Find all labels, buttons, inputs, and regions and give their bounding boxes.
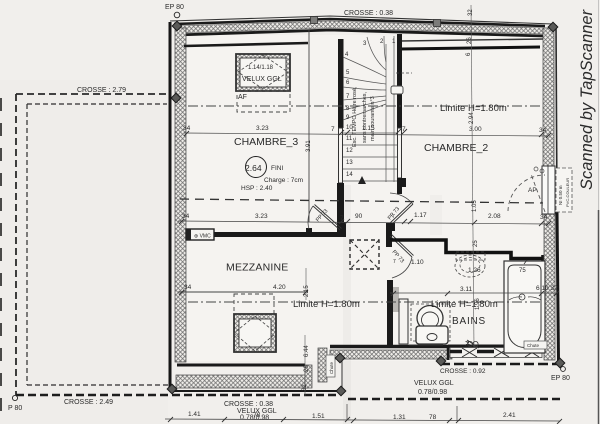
svg-text:7: 7: [402, 126, 406, 133]
svg-text:⊕ VMC: ⊕ VMC: [194, 234, 211, 240]
svg-text:BAINS: BAINS: [452, 316, 486, 327]
svg-text:P 80: P 80: [8, 405, 22, 412]
svg-text:25: 25: [473, 240, 479, 247]
svg-text:1.31: 1.31: [393, 414, 406, 421]
svg-text:3.23: 3.23: [256, 125, 269, 132]
svg-text:34: 34: [183, 125, 191, 132]
svg-text:1.41: 1.41: [188, 411, 201, 418]
svg-text:1.14/1.18: 1.14/1.18: [248, 65, 274, 71]
svg-text:1.10: 1.10: [411, 259, 424, 266]
svg-text:75: 75: [519, 268, 526, 274]
svg-text:PVC-COULEUR: PVC-COULEUR: [565, 178, 570, 207]
svg-text:CHAMBRE_3: CHAMBRE_3: [234, 136, 298, 148]
svg-text:7: 7: [340, 215, 344, 222]
svg-text:78: 78: [429, 414, 437, 421]
svg-text:Chute: Chute: [527, 343, 540, 348]
svg-text:14: 14: [346, 172, 353, 178]
svg-text:34: 34: [539, 127, 547, 134]
svg-text:2.41: 2.41: [503, 412, 516, 419]
svg-text:34: 34: [184, 284, 192, 291]
svg-text:7: 7: [393, 259, 396, 265]
svg-text:VELUX GGL: VELUX GGL: [242, 76, 282, 83]
svg-text:78: 78: [253, 412, 261, 419]
svg-text:sans contremarches,: sans contremarches,: [362, 91, 368, 143]
svg-text:3.23: 3.23: [255, 213, 268, 220]
svg-text:Limite H=1.80m: Limite H=1.80m: [293, 299, 360, 310]
svg-text:CROSSE : 0.92: CROSSE : 0.92: [440, 368, 486, 375]
svg-text:CROSSE : 2.79: CROSSE : 2.79: [77, 87, 126, 94]
svg-text:3.91: 3.91: [306, 140, 312, 152]
svg-text:NI 0.50 m: NI 0.50 m: [558, 185, 563, 205]
svg-text:FINI: FINI: [271, 165, 283, 172]
svg-text:EP 80: EP 80: [165, 4, 184, 11]
svg-text:HSP : 2.40: HSP : 2.40: [241, 185, 273, 192]
svg-text:3.00: 3.00: [469, 126, 482, 133]
svg-text:CROSSE : 2.49: CROSSE : 2.49: [64, 399, 113, 406]
svg-text:12: 12: [346, 148, 353, 154]
svg-text:VELUX GGL: VELUX GGL: [414, 380, 454, 387]
svg-text:1.26: 1.26: [468, 267, 481, 274]
svg-text:7: 7: [331, 126, 335, 133]
svg-text:CHAMBRE_2: CHAMBRE_2: [424, 142, 488, 154]
svg-text:Esc. TEMPO Hêtre rosé,: Esc. TEMPO Hêtre rosé,: [352, 86, 358, 147]
svg-text:Scanned by TapScanner: Scanned by TapScanner: [578, 8, 596, 190]
svg-text:34: 34: [466, 340, 472, 347]
svg-text:0.78/0.98: 0.78/0.98: [418, 389, 447, 396]
svg-text:6 10 32: 6 10 32: [536, 285, 558, 292]
svg-text:AF: AF: [238, 94, 247, 101]
svg-text:CROSSE : 0.38: CROSSE : 0.38: [344, 10, 393, 17]
svg-text:Limite H=1.80m: Limite H=1.80m: [431, 299, 498, 310]
svg-text:90: 90: [355, 213, 363, 220]
svg-text:34: 34: [182, 213, 190, 220]
svg-text:26: 26: [467, 37, 473, 44]
svg-text:Charge : 7cm: Charge : 7cm: [264, 177, 303, 184]
svg-text:CROSSE : 0.38: CROSSE : 0.38: [224, 401, 273, 408]
svg-text:Chute: Chute: [329, 361, 334, 374]
svg-text:EP 80: EP 80: [551, 375, 570, 382]
svg-text:13: 13: [346, 160, 353, 166]
svg-text:7: 7: [392, 214, 395, 220]
svg-text:1.17: 1.17: [414, 212, 427, 219]
svg-text:1.96: 1.96: [475, 298, 481, 310]
svg-text:4.20: 4.20: [273, 284, 286, 291]
svg-text:2.64: 2.64: [245, 163, 262, 173]
svg-text:AP: AP: [528, 187, 537, 194]
svg-text:1.51: 1.51: [312, 413, 325, 420]
svg-text:2.08: 2.08: [488, 213, 501, 220]
svg-text:34: 34: [540, 214, 548, 221]
svg-text:3.11: 3.11: [460, 286, 473, 293]
svg-text:2.15: 2.15: [304, 285, 310, 297]
svg-text:1.15: 1.15: [362, 125, 375, 132]
svg-text:MEZZANINE: MEZZANINE: [226, 262, 288, 274]
